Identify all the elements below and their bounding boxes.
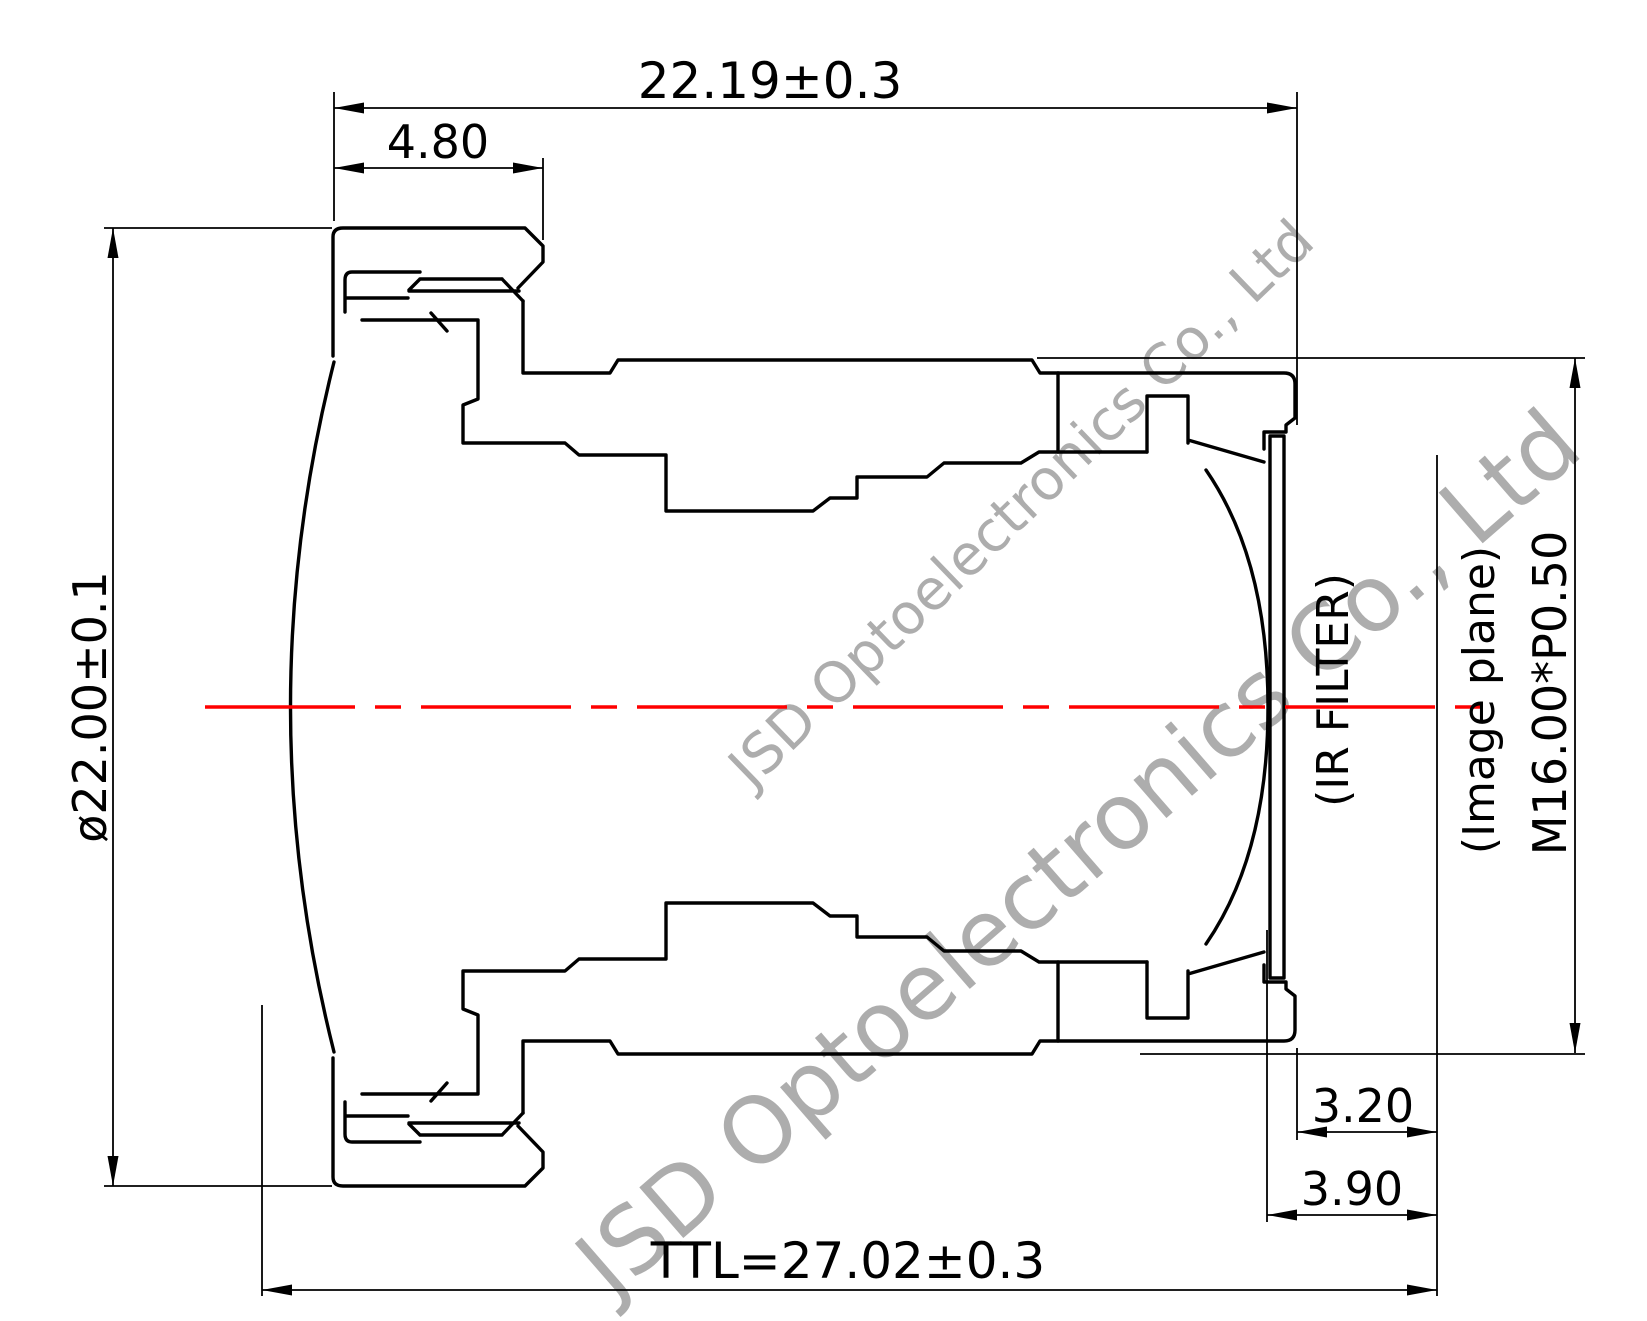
inner-bore-tick-lower [431, 1083, 447, 1101]
label-image-plane: (Image plane) [1454, 546, 1505, 854]
lens-technical-drawing: JSD Optoelectronics Co., Ltd JSD Optoele… [0, 0, 1647, 1321]
label-ir-filter: (IR FILTER) [1308, 573, 1359, 807]
dim-total-track-length: TTL=27.02±0.3 [650, 1232, 1046, 1290]
watermark-text-large: JSD Optoelectronics Co., Ltd [552, 389, 1600, 1320]
inner-bore-tick-upper [431, 313, 447, 331]
dim-filter-to-image: 3.20 [1312, 1079, 1414, 1133]
dim-mount-thread: M16.00*P0.50 [1523, 531, 1577, 856]
dim-overall-width: 22.19±0.3 [638, 52, 903, 110]
dim-filter-front-to-image: 3.90 [1301, 1162, 1403, 1216]
watermark-layer: JSD Optoelectronics Co., Ltd JSD Optoele… [0, 164, 1600, 1320]
rear-clamp-lower [1147, 952, 1264, 1018]
front-cap-upper-lip [409, 279, 523, 301]
drawing-canvas: JSD Optoelectronics Co., Ltd JSD Optoele… [0, 0, 1647, 1321]
dim-outer-diameter: ø22.00±0.1 [63, 571, 117, 843]
dim-front-cap-width: 4.80 [387, 115, 489, 169]
front-cap-lower-lip [409, 1113, 523, 1135]
